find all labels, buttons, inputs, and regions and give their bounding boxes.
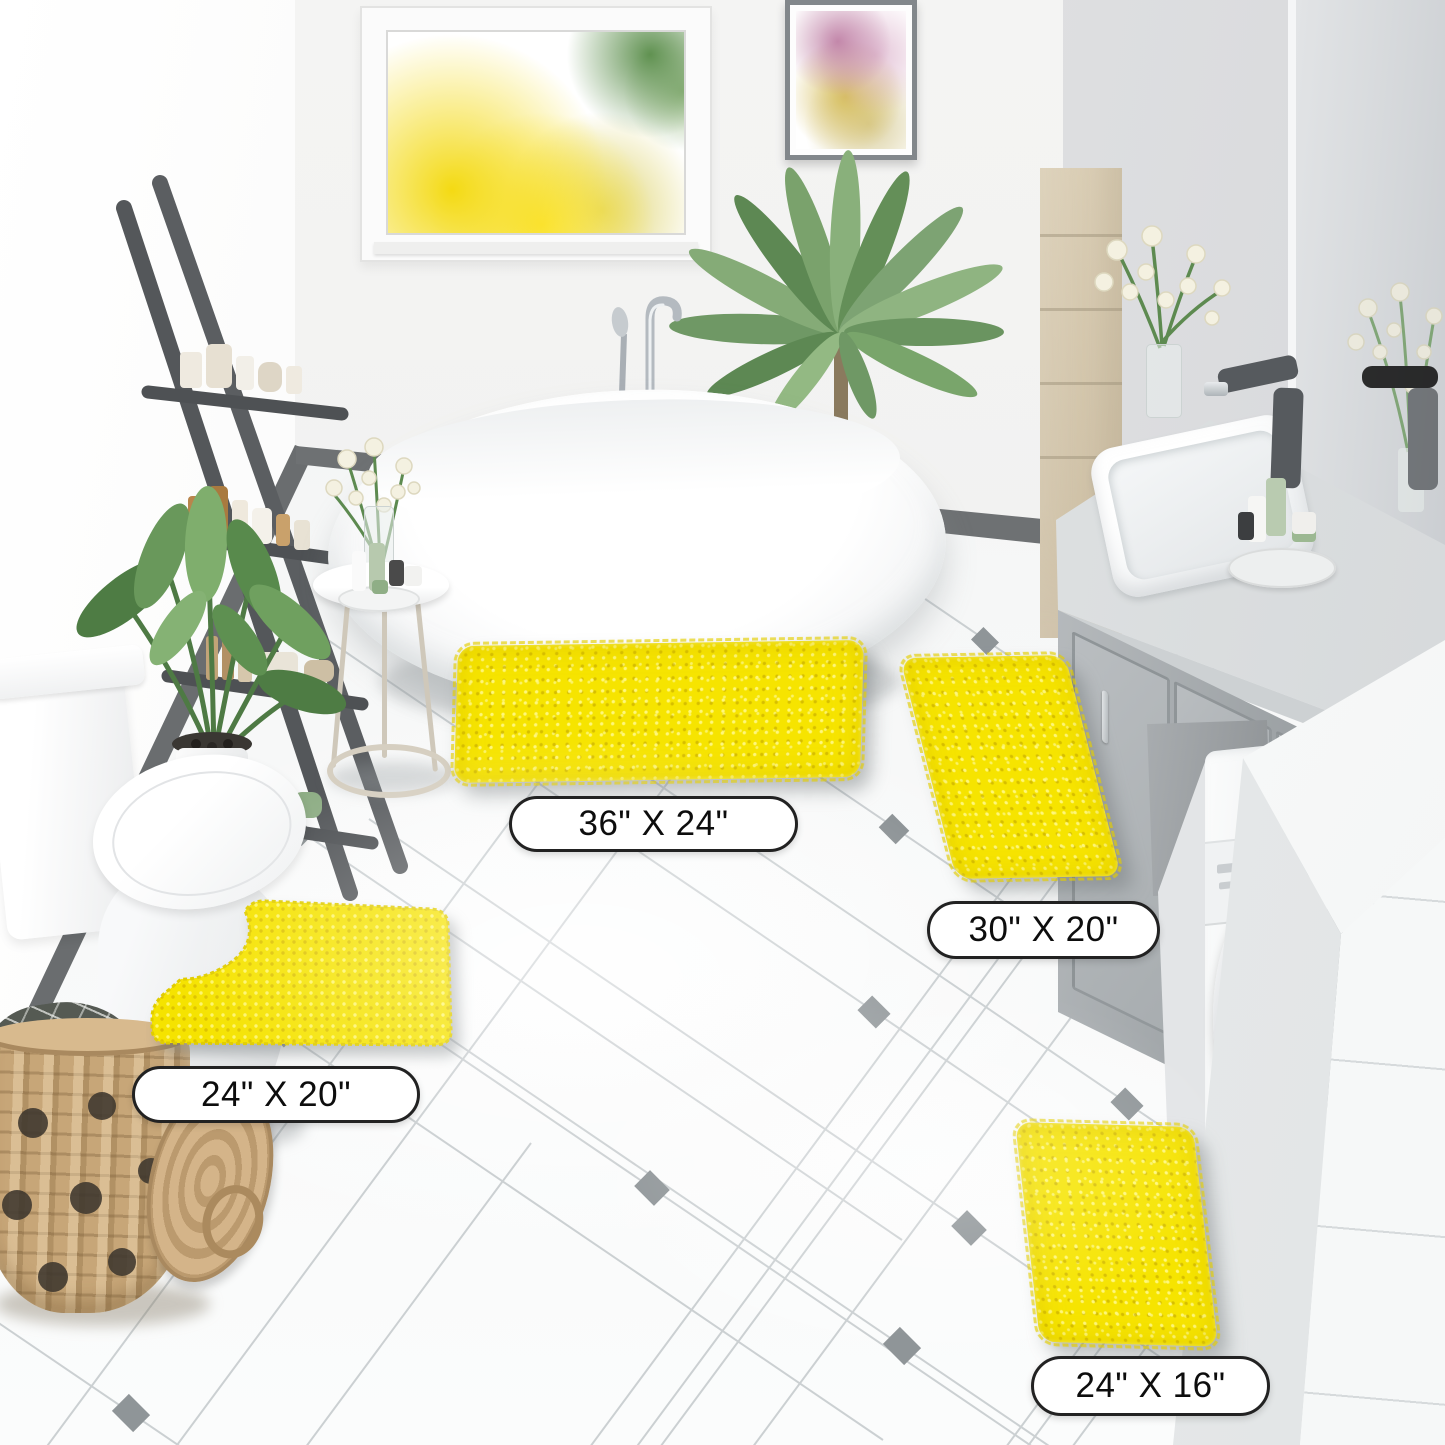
- counter-flower-vase: [1146, 344, 1182, 418]
- window: [360, 6, 712, 262]
- size-label-24x20: 24" X 20": [132, 1066, 420, 1123]
- toiletry-jar: [404, 566, 422, 586]
- bath-mat-24x16: [1015, 1122, 1218, 1347]
- shelf-line: [1040, 382, 1122, 385]
- wall-art-watercolor: [796, 11, 906, 149]
- toiletry-bottle: [352, 551, 366, 591]
- basket-dot: [70, 1182, 102, 1214]
- size-label-36x24: 36" X 24": [509, 796, 798, 852]
- wall-art-frame: [785, 0, 917, 160]
- window-view-trees: [386, 30, 686, 235]
- sink-faucet-body: [1270, 388, 1303, 489]
- bath-mat-36x24: [454, 640, 864, 783]
- basket-dot: [88, 1092, 116, 1120]
- counter-jar: [1292, 512, 1316, 542]
- vanity-mirror: [1296, 0, 1445, 545]
- cabinet-handle: [1102, 689, 1108, 744]
- size-label-text: 36" X 24": [578, 804, 728, 844]
- window-sill: [374, 242, 698, 254]
- counter-dark-bottle: [1238, 512, 1254, 540]
- bathroom-product-scene: 36" X 24" 30" X 20" 24" X 20" 24" X 16": [0, 0, 1445, 1445]
- counter-tray: [1228, 548, 1336, 588]
- table-leg: [382, 598, 387, 758]
- size-label-text: 30" X 20": [968, 910, 1118, 950]
- basket-dot: [108, 1248, 136, 1276]
- toiletry-green-jar: [372, 580, 388, 594]
- basket-dot: [18, 1108, 48, 1138]
- basket-dot: [2, 1190, 32, 1220]
- sink-faucet-spout: [1204, 382, 1228, 396]
- shelf-line: [1040, 308, 1122, 311]
- size-label-30x20: 30" X 20": [927, 901, 1160, 959]
- shelf-line: [1040, 234, 1122, 237]
- size-label-text: 24" X 16": [1075, 1366, 1225, 1406]
- toiletry-dark-bottle: [389, 560, 404, 586]
- table-base-ring: [327, 744, 451, 798]
- size-label-24x16: 24" X 16": [1031, 1356, 1270, 1416]
- size-label-text: 24" X 20": [201, 1075, 351, 1115]
- basket-dot: [38, 1262, 68, 1292]
- counter-pump-bottle: [1266, 478, 1286, 536]
